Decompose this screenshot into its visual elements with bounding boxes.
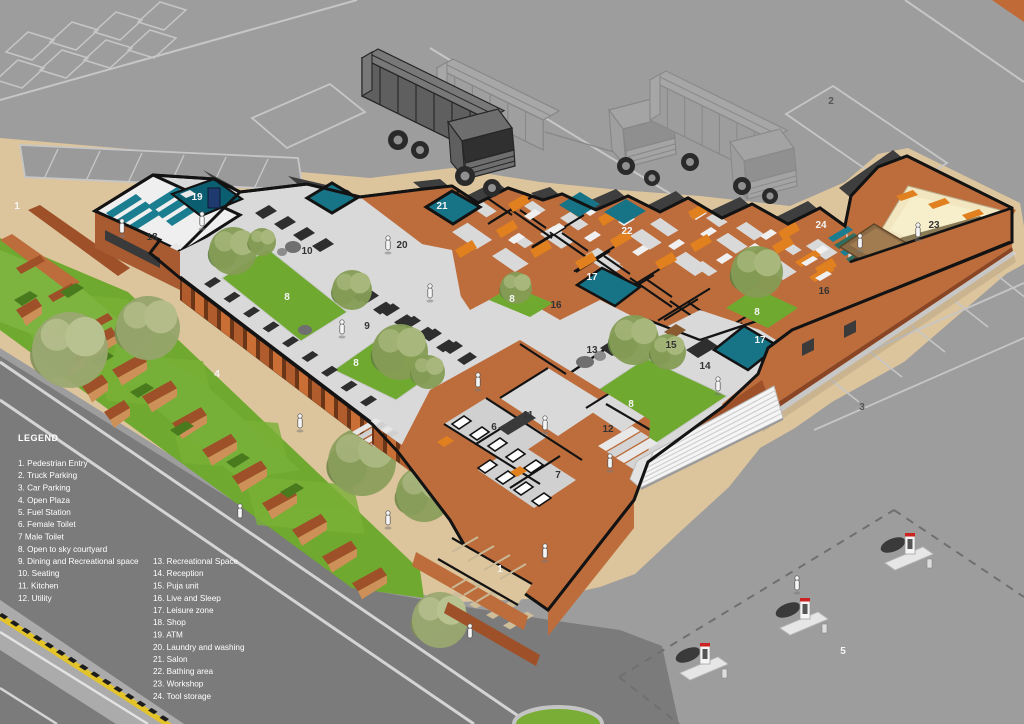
svg-text:10: 10 (301, 246, 313, 257)
svg-text:24: 24 (815, 220, 827, 231)
svg-text:8. Open to sky courtyard: 8. Open to sky courtyard (18, 545, 108, 554)
svg-text:15. Puja unit: 15. Puja unit (153, 582, 199, 591)
svg-text:7 Male Toilet: 7 Male Toilet (18, 533, 65, 542)
svg-text:2: 2 (828, 96, 834, 107)
svg-text:8: 8 (628, 399, 634, 410)
svg-text:4. Open Plaza: 4. Open Plaza (18, 496, 70, 505)
svg-text:23: 23 (928, 220, 940, 231)
svg-text:7: 7 (555, 470, 561, 481)
svg-text:3: 3 (859, 402, 865, 413)
svg-text:LEGEND: LEGEND (18, 433, 59, 443)
svg-text:11: 11 (523, 410, 534, 421)
svg-text:20: 20 (396, 240, 408, 251)
svg-text:13: 13 (586, 345, 598, 356)
svg-text:6. Female Toilet: 6. Female Toilet (18, 520, 76, 529)
svg-text:10. Seating: 10. Seating (18, 569, 60, 578)
svg-text:12. Utility: 12. Utility (18, 594, 53, 603)
svg-text:1: 1 (14, 201, 20, 212)
svg-text:22. Bathing area: 22. Bathing area (153, 667, 214, 676)
svg-text:5: 5 (840, 646, 846, 657)
svg-text:4: 4 (214, 369, 220, 380)
svg-text:1. Pedestrian Entry: 1. Pedestrian Entry (18, 459, 89, 468)
svg-text:18: 18 (146, 232, 158, 243)
svg-text:9: 9 (364, 321, 370, 332)
svg-text:21. Salon: 21. Salon (153, 655, 188, 664)
svg-text:16: 16 (818, 286, 830, 297)
svg-text:9. Dining and Recreational spa: 9. Dining and Recreational space (18, 557, 139, 566)
svg-text:3. Car Parking: 3. Car Parking (18, 484, 71, 493)
svg-text:12: 12 (602, 424, 614, 435)
svg-text:23. Workshop: 23. Workshop (153, 680, 204, 689)
svg-text:17. Leisure zone: 17. Leisure zone (153, 606, 214, 615)
svg-text:20. Laundry and washing: 20. Laundry and washing (153, 643, 245, 652)
svg-text:8: 8 (509, 294, 515, 305)
svg-text:19: 19 (191, 192, 203, 203)
svg-text:24. Tool storage: 24. Tool storage (153, 692, 212, 701)
svg-text:1: 1 (497, 564, 503, 575)
svg-text:2. Truck Parking: 2. Truck Parking (18, 471, 78, 480)
svg-text:13. Recreational Space: 13. Recreational Space (153, 557, 239, 566)
svg-text:17: 17 (586, 272, 598, 283)
svg-text:15: 15 (665, 340, 677, 351)
svg-text:21: 21 (436, 201, 448, 212)
svg-text:8: 8 (754, 307, 760, 318)
svg-text:17: 17 (754, 335, 766, 346)
svg-text:18. Shop: 18. Shop (153, 618, 186, 627)
svg-text:8: 8 (284, 292, 290, 303)
svg-text:16. Live and Sleep: 16. Live and Sleep (153, 594, 221, 603)
svg-text:16: 16 (550, 300, 562, 311)
svg-text:14: 14 (699, 361, 711, 372)
svg-text:19. ATM: 19. ATM (153, 631, 183, 640)
svg-text:11. Kitchen: 11. Kitchen (18, 582, 59, 591)
svg-text:5. Fuel Station: 5. Fuel Station (18, 508, 71, 517)
svg-text:14. Reception: 14. Reception (153, 569, 204, 578)
svg-text:22: 22 (621, 226, 633, 237)
svg-text:6: 6 (491, 422, 497, 433)
svg-text:8: 8 (353, 358, 359, 369)
